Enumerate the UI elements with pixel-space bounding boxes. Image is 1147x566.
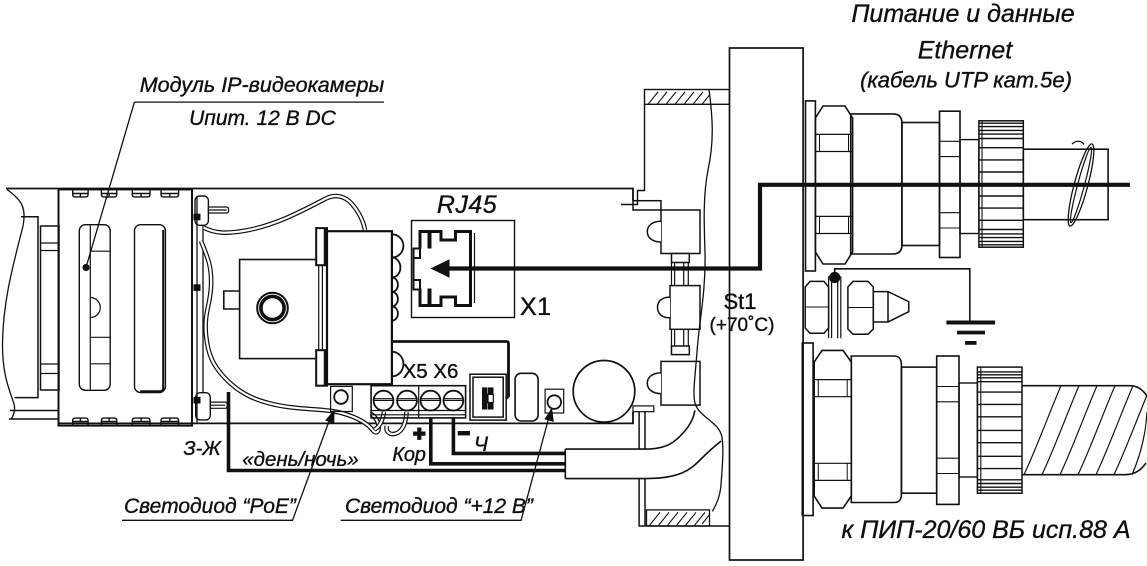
svg-text:к ПИП-20/60 ВБ исп.88 А: к ПИП-20/60 ВБ исп.88 А [841, 516, 1130, 544]
svg-text:«день/ночь»: «день/ночь» [242, 448, 358, 471]
svg-text:Uпит. 12 В DC: Uпит. 12 В DC [189, 107, 337, 130]
svg-text:X1: X1 [520, 293, 552, 321]
svg-text:X5 X6: X5 X6 [403, 360, 459, 383]
svg-text:Модуль IP-видеокамеры: Модуль IP-видеокамеры [140, 73, 385, 97]
svg-text:Ethernet: Ethernet [918, 37, 1014, 65]
svg-text:(+70˚С): (+70˚С) [710, 315, 775, 336]
svg-text:Ч: Ч [474, 433, 489, 456]
svg-text:RJ45: RJ45 [437, 191, 497, 219]
svg-text:Светодиод “+12 В”: Светодиод “+12 В” [345, 495, 534, 518]
svg-text:(кабель UTP кат.5е): (кабель UTP кат.5е) [860, 68, 1072, 93]
svg-text:St1: St1 [723, 289, 756, 314]
svg-text:Кор: Кор [392, 444, 425, 466]
svg-text:Питание и данные: Питание и данные [851, 0, 1074, 28]
svg-text:З-Ж: З-Ж [183, 438, 222, 460]
svg-text:Светодиод “РоЕ”: Светодиод “РоЕ” [124, 495, 297, 518]
